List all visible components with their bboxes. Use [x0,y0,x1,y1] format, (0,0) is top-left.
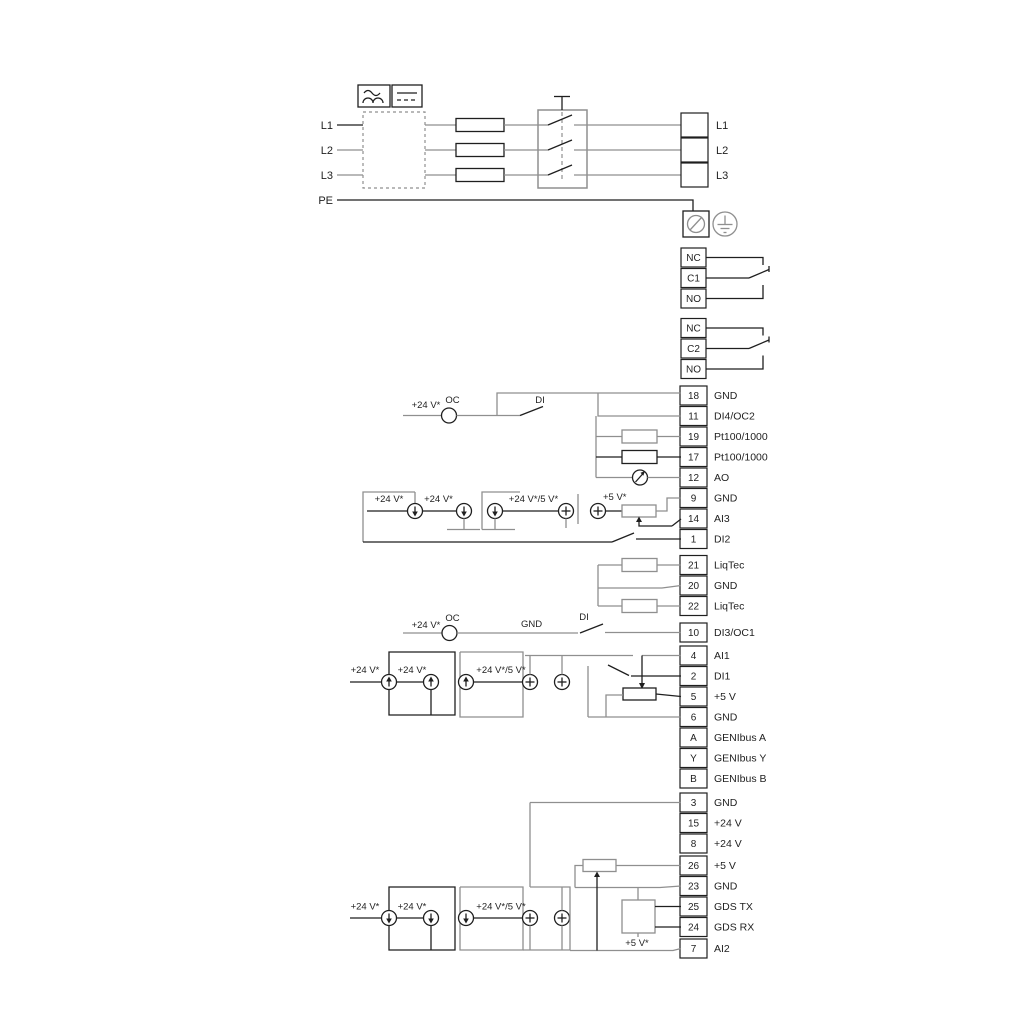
stripA-17-label: Pt100/1000 [714,452,768,464]
current-source-icon [424,675,439,690]
mains-terminal-block: L1 L2 L3 [681,113,728,187]
v24-label: +24 V* [398,902,427,913]
v24-5-label: +24 V*/5 V* [509,494,559,505]
stripA-14-num: 14 [688,514,700,525]
stripC-A-label: GENIbus A [714,732,766,744]
input-label-pe: PE [318,195,333,207]
terminal-cell [681,138,708,162]
input-label-l1: L1 [321,120,333,132]
output-label-l3: L3 [716,170,728,182]
v24-label: +24 V* [412,400,441,411]
stripD-3-num: 3 [691,798,697,809]
stripC-5-num: 5 [691,692,697,703]
voltage-source-icon [559,504,574,519]
v24-label: +24 V* [351,902,380,913]
strip-d: 3GND 15+24 V 8+24 V 26+5 V 23GND 25GDS T… [680,793,754,958]
output-label-l1: L1 [716,120,728,132]
stripC-2-num: 2 [691,672,697,683]
dc-icon [392,85,422,107]
v5-label: +5 V* [603,492,627,503]
v24-label: +24 V* [398,665,427,676]
stripA-9-label: GND [714,493,738,505]
stripC-Y-label: GENIbus Y [714,753,766,765]
relay2-c2: C2 [687,344,700,355]
relay1-block: NC C1 NO [681,248,769,308]
current-source-icon [488,504,503,519]
pt100-resistor-19 [622,430,657,443]
potentiometer [622,505,656,517]
relay2-block: NC C2 NO [681,319,769,379]
v24-label: +24 V* [351,665,380,676]
voltage-source-icon [555,675,570,690]
stripA-9-num: 9 [691,494,697,505]
stripA-11-num: 11 [688,412,699,423]
pot-wiper-arrow [594,872,600,878]
stripC-6-num: 6 [691,713,697,724]
potentiometer [623,688,656,700]
oc-label: OC [445,395,459,406]
pt100-resistor-17 [622,451,657,464]
potentiometer [583,860,616,872]
v24-label: +24 V* [412,620,441,631]
stripD-25-num: 25 [688,902,700,913]
relay2-no: NO [686,365,701,376]
input-label-l3: L3 [321,170,333,182]
stripD-8-label: +24 V [714,838,742,850]
v24-5-label: +24 V*/5 V* [476,665,526,676]
relay1-no: NO [686,294,701,305]
terminal-cell [681,163,708,187]
di4-oc2-circuit: +24 V* OC DI [403,393,681,423]
stripC-10-label: DI3/OC1 [714,627,755,639]
fuse-l1 [456,119,504,132]
v24-5-label: +24 V*/5 V* [476,902,526,913]
di3-switch [580,624,603,633]
gds-sensor-circuit: +5 V* [575,860,681,951]
stripA-12-num: 12 [688,473,700,484]
stripD-24-label: GDS RX [714,922,754,934]
strip-b: 21LiqTec 20GND 22LiqTec [598,556,744,616]
current-source-icon [408,504,423,519]
current-source-icon [459,675,474,690]
stripB-22-label: LiqTec [714,601,744,613]
open-collector-icon [442,626,457,641]
pt100-ao-circuit [596,416,681,485]
converter-box [363,112,425,188]
stripA-12-label: AO [714,472,729,484]
di1-switch [608,665,629,676]
fuse-l3 [456,169,504,182]
pe-wire [337,200,693,211]
voltage-source-icon [555,911,570,926]
ai3-option-circuit: +24 V* +24 V* +24 V*/5 V* +5 V* [363,492,681,542]
stripA-14-label: AI3 [714,513,730,525]
current-source-icon [457,504,472,519]
liqtec-resistor-22 [622,600,657,613]
stripC-B-num: B [690,774,697,785]
di-label: DI [579,612,589,623]
stripD-3-label: GND [714,797,738,809]
relay2-nc: NC [686,324,700,335]
stripD-23-num: 23 [688,882,700,893]
voltage-source-icon [523,911,538,926]
gds-sensor-box [622,900,655,933]
terminal-cell [681,113,708,137]
relay1-c1: C1 [687,274,700,285]
wiring-diagram: L1 L2 L3 PE [0,0,1024,1024]
fuse-l2 [456,144,504,157]
current-source-icon [382,911,397,926]
earth-icon [713,212,737,236]
di3-oc1-circuit: +24 V* OC GND DI [403,612,681,641]
di2-switch [612,533,634,542]
strip-a: 18GND 11DI4/OC2 19Pt100/1000 17Pt100/100… [680,386,768,549]
stripC-4-num: 4 [691,651,697,662]
stripA-19-label: Pt100/1000 [714,431,768,443]
mains-section: L1 L2 L3 PE [318,85,737,237]
stripB-21-label: LiqTec [714,560,744,572]
stripC-4-label: AI1 [714,650,730,662]
stripB-20-label: GND [714,580,738,592]
liqtec-circuit [598,559,681,613]
v5-label: +5 V* [625,938,649,949]
stripC-6-label: GND [714,712,738,724]
voltage-source-icon [591,504,606,519]
di-label: DI [535,395,545,406]
oc-label: OC [445,613,459,624]
pe-screw-icon [683,211,709,237]
stripA-18-num: 18 [688,391,700,402]
stripA-19-num: 19 [688,432,700,443]
disconnect-switch [538,97,681,189]
stripD-25-label: GDS TX [714,901,753,913]
stripD-24-num: 24 [688,923,700,934]
current-source-icon [382,675,397,690]
stripD-15-label: +24 V [714,818,742,830]
v24-label: +24 V* [375,494,404,505]
di4-switch [520,407,543,416]
stripD-15-num: 15 [688,819,700,830]
stripC-10-num: 10 [688,628,700,639]
stripC-B-label: GENIbus B [714,773,767,785]
stripC-A-num: A [690,733,697,744]
analog-output-meter-icon [633,470,648,485]
stripD-26-label: +5 V [714,860,736,872]
stripC-Y-num: Y [690,754,697,765]
open-collector-icon [442,408,457,423]
stripB-22-num: 22 [688,602,700,613]
stripB-21-num: 21 [688,561,700,572]
ac-icon [358,85,390,107]
v24-label: +24 V* [424,494,453,505]
stripD-26-num: 26 [688,861,700,872]
output-label-l2: L2 [716,145,728,157]
strip-c: 10DI3/OC1 4AI1 2DI1 5+5 V 6GND AGENIbus … [680,623,767,788]
liqtec-resistor-21 [622,559,657,572]
stripD-7-num: 7 [691,944,697,955]
voltage-source-icon [523,675,538,690]
stripA-17-num: 17 [688,453,700,464]
relay1-nc: NC [686,253,700,264]
stripA-18-label: GND [714,390,738,402]
stripC-5-label: +5 V [714,691,736,703]
current-source-icon [459,911,474,926]
di2-circuit [363,533,681,542]
input-label-l2: L2 [321,145,333,157]
ai1-option-circuit: +24 V* +24 V* +24 V*/5 V* [350,652,681,717]
stripA-1-num: 1 [691,535,697,546]
stripD-7-label: AI2 [714,943,730,955]
current-source-icon [424,911,439,926]
stripA-11-label: DI4/OC2 [714,411,755,423]
stripA-1-label: DI2 [714,534,731,546]
stripC-2-label: DI1 [714,671,731,683]
relay1-contact [706,258,769,299]
stripD-23-label: GND [714,881,738,893]
diagram-canvas: L1 L2 L3 PE [0,0,1024,1024]
stripB-20-num: 20 [688,581,700,592]
stripD-8-num: 8 [691,839,697,850]
relay2-contact [706,328,769,369]
gnd-label: GND [521,619,542,630]
